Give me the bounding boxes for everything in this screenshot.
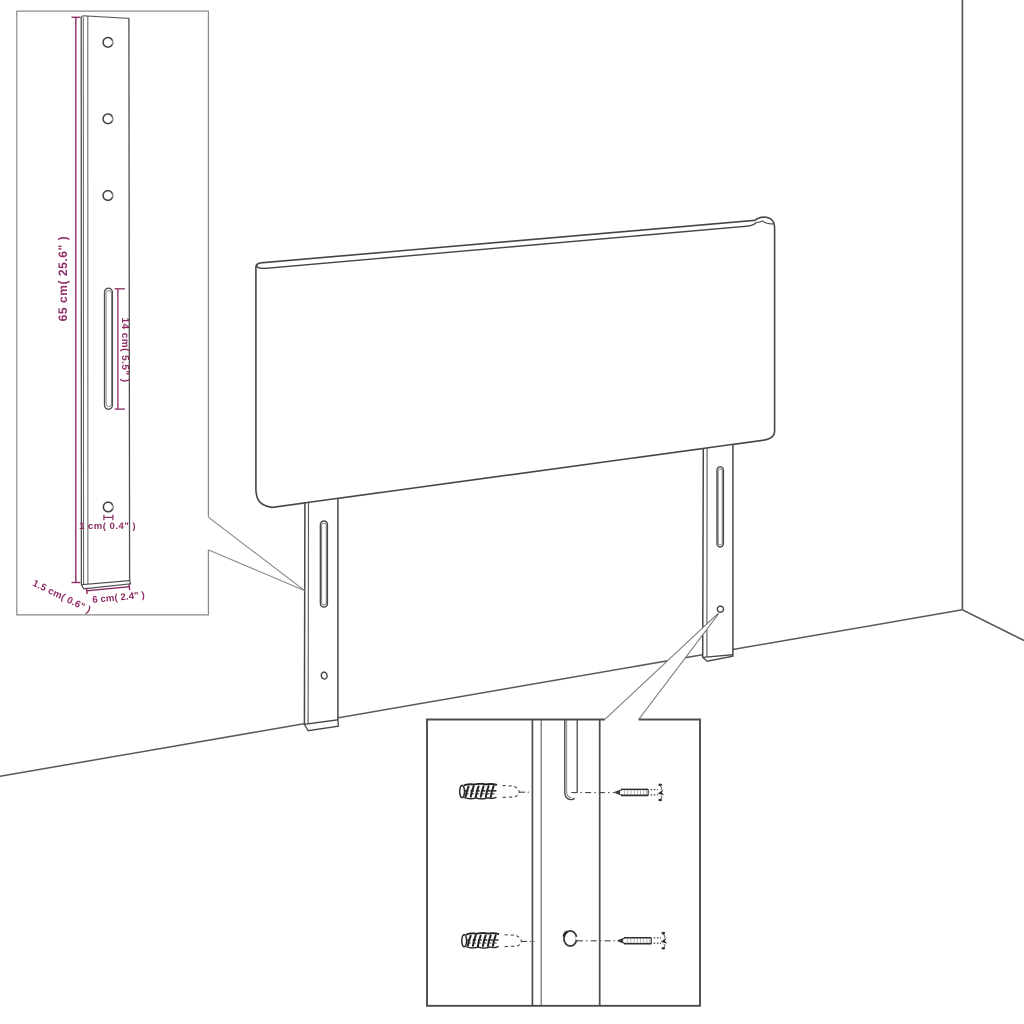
svg-text:1 cm( 0.4" ): 1 cm( 0.4" ) — [79, 521, 136, 532]
svg-text:14 cm( 5.5" ): 14 cm( 5.5" ) — [119, 317, 130, 382]
svg-text:65 cm( 25.6" ): 65 cm( 25.6" ) — [56, 236, 70, 321]
